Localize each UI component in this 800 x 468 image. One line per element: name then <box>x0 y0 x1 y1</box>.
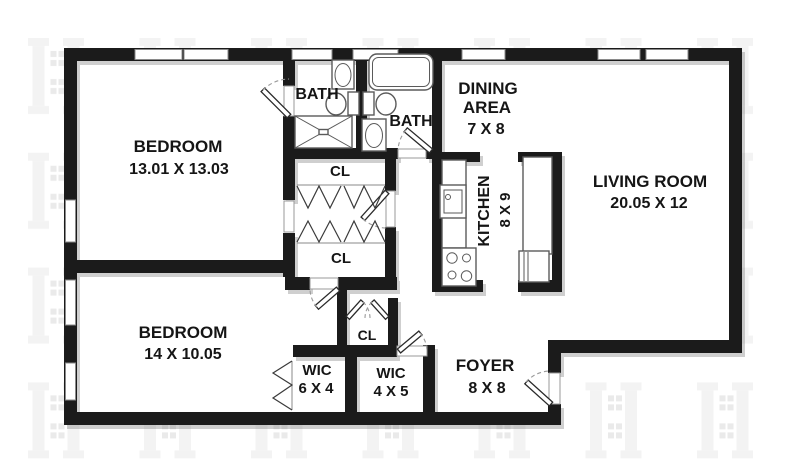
bath1-label: BATH <box>295 86 338 103</box>
wic-right-label: WIC <box>376 365 405 382</box>
bedroom1-dims: 13.01 X 13.03 <box>129 161 229 178</box>
living-label: LIVING ROOM <box>593 172 707 191</box>
wall-segment <box>64 412 561 425</box>
window <box>598 50 640 60</box>
shower-icon <box>295 116 352 148</box>
bath2-label: BATH <box>389 113 432 130</box>
wic-left-dims: 6 X 4 <box>298 380 334 397</box>
window <box>66 280 76 325</box>
wall-segment <box>548 404 561 425</box>
window <box>135 50 182 60</box>
closet-small-label: CL <box>358 327 377 343</box>
toilet-tank-icon <box>363 92 374 115</box>
wall-segment <box>283 58 295 86</box>
wic-right-dims: 4 X 5 <box>373 383 408 400</box>
dining-label-line2: AREA <box>463 98 511 117</box>
floor-plan: BEDROOM 13.01 X 13.03 BEDROOM 14 X 10.05… <box>0 0 800 468</box>
wall-segment <box>345 357 357 412</box>
wic-left-label: WIC <box>302 362 331 379</box>
living-dims: 20.05 X 12 <box>610 195 688 212</box>
wall-segment <box>548 340 742 353</box>
wall-segment <box>64 260 293 273</box>
window <box>66 363 76 400</box>
wall-segment <box>293 345 397 357</box>
wall-segment <box>385 152 396 191</box>
wall-segment <box>338 277 397 290</box>
door-opening <box>386 191 395 227</box>
door-opening <box>310 278 338 289</box>
bedroom2-label: BEDROOM <box>139 323 228 342</box>
toilet-tank-icon <box>348 92 359 115</box>
bedroom2-dims: 14 X 10.05 <box>144 346 222 363</box>
kitchen-sink-icon <box>440 185 466 218</box>
door-opening <box>398 149 426 158</box>
window <box>292 50 332 60</box>
toilet-icon <box>376 93 396 115</box>
closet-lower-label: CL <box>331 250 351 267</box>
foyer-label: FOYER <box>456 356 515 375</box>
window <box>462 50 505 60</box>
wall-segment <box>337 290 347 347</box>
closet-upper-label: CL <box>330 163 350 180</box>
wall-segment <box>729 48 742 353</box>
dining-dims: 7 X 8 <box>467 121 504 138</box>
wall-segment <box>388 298 398 347</box>
window <box>184 50 228 60</box>
bedroom1-label: BEDROOM <box>134 137 223 156</box>
stove-icon <box>442 248 476 286</box>
wall-segment <box>552 152 562 292</box>
wall-segment <box>432 58 442 292</box>
kitchen-label: KITCHEN <box>476 175 493 246</box>
kitchen-counter <box>523 157 552 254</box>
fridge-icon <box>519 251 549 282</box>
dining-label-line1: DINING <box>458 79 518 98</box>
window <box>66 200 76 242</box>
bathtub-icon <box>369 54 433 90</box>
door-opening <box>284 201 294 232</box>
door-opening <box>549 373 560 404</box>
window <box>646 50 688 60</box>
foyer-dims: 8 X 8 <box>468 380 505 397</box>
kitchen-dims: 8 X 9 <box>497 192 514 227</box>
wall-segment <box>285 277 310 290</box>
